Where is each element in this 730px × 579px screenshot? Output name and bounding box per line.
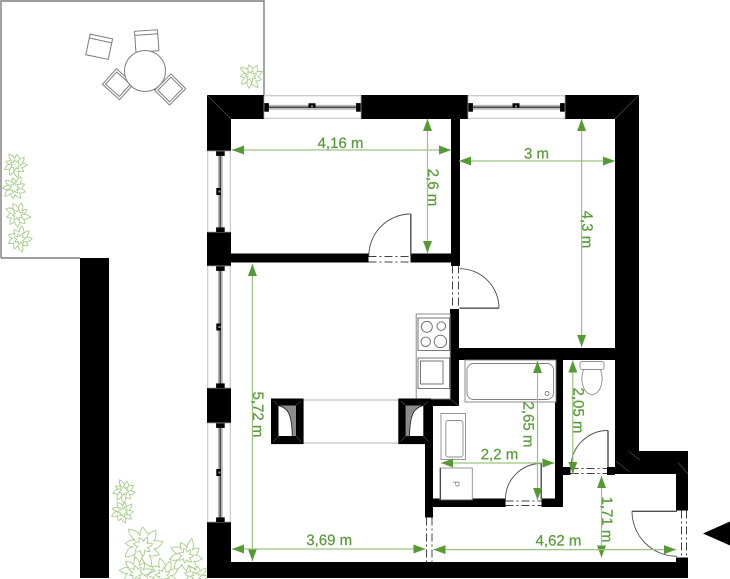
svg-text:P: P (451, 481, 461, 487)
